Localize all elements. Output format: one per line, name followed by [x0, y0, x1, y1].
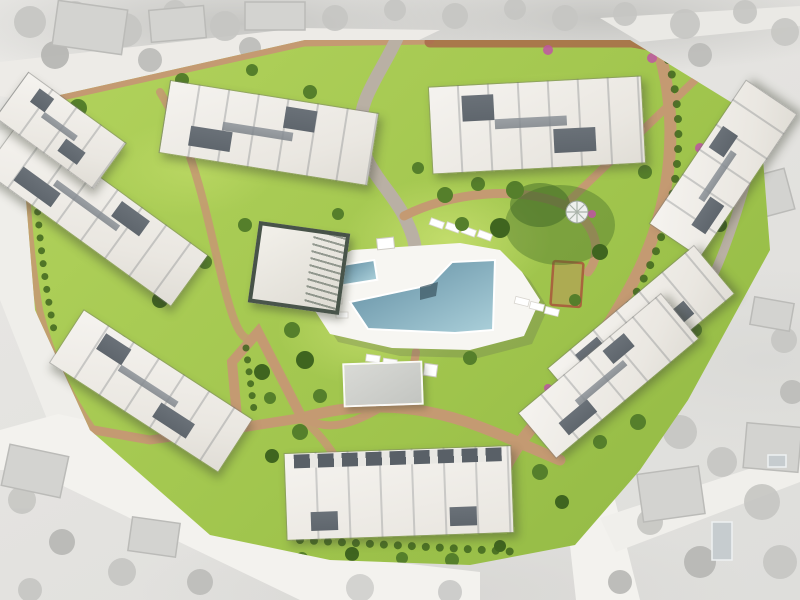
clubhouse [248, 221, 351, 315]
apartment-building-north-right [428, 75, 646, 174]
apartment-building-south [284, 445, 515, 541]
site-plan-rendering [0, 0, 800, 600]
pool-pavilion [342, 361, 423, 408]
